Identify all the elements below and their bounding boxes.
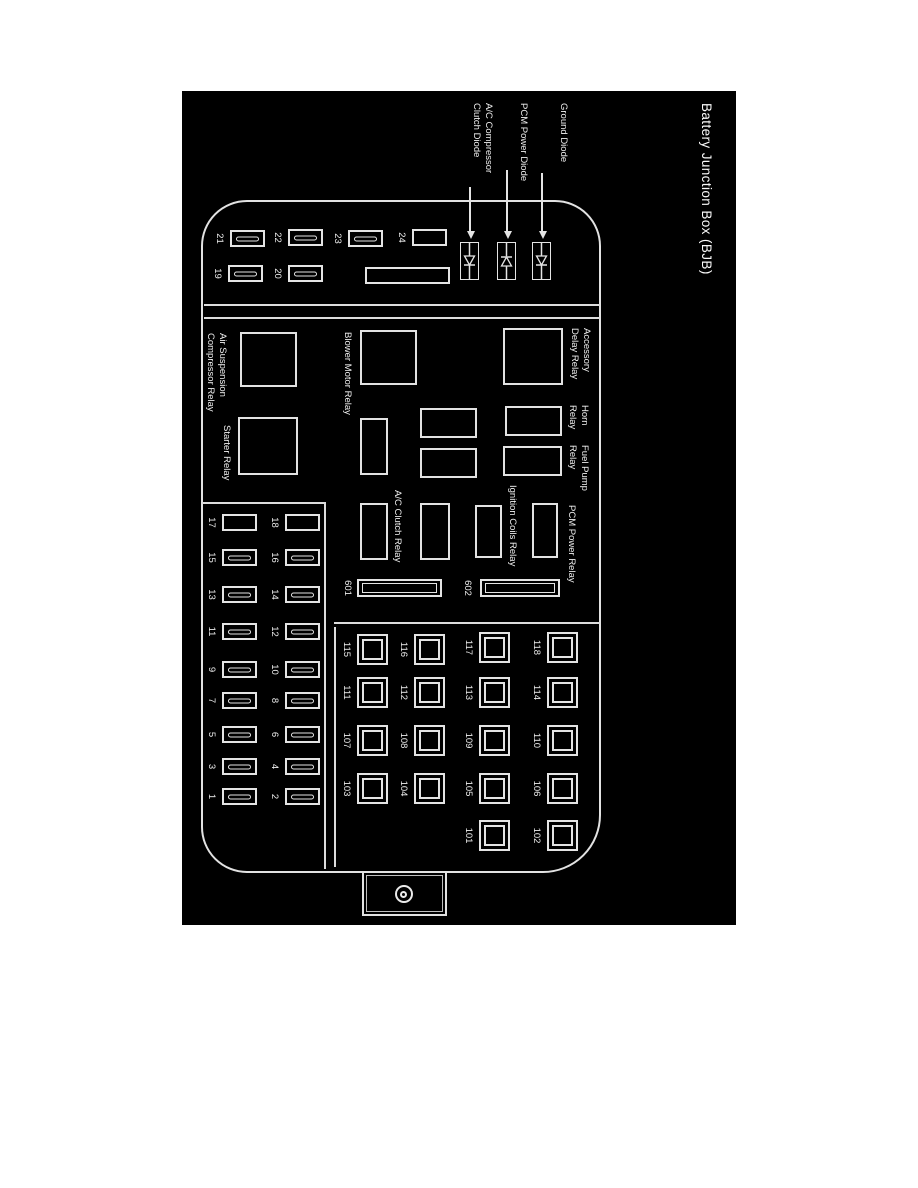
starter-relay-box (238, 417, 298, 475)
fuse-109: 109 (463, 725, 510, 756)
fuse-5: 5 (206, 726, 257, 743)
fuel-pump-relay-label: Fuel Pump Relay (567, 445, 590, 491)
fuse-108: 108 (398, 725, 445, 756)
air-suspension-relay-label: Air Suspension Compressor Relay (205, 333, 228, 412)
fuse-22: 22 (272, 229, 323, 246)
fuse-22-label: 22 (272, 229, 283, 246)
fuse-108-label: 108 (398, 725, 409, 756)
fuse-3-label: 3 (206, 758, 217, 775)
blower-motor-relay-box (360, 330, 417, 385)
fuse-20: 20 (272, 265, 323, 282)
fuse-23: 23 (332, 230, 383, 247)
fuse-9-label: 9 (206, 661, 217, 678)
fuse-111-label: 111 (341, 677, 352, 708)
fuse-602-label: 602 (462, 577, 473, 599)
fuse-8: 8 (269, 692, 320, 709)
fuse-16-label: 16 (269, 549, 280, 566)
air-suspension-relay-label-line1: Air Suspension (217, 333, 229, 412)
fuse-17-label: 17 (206, 514, 217, 531)
divider-line-6 (202, 502, 326, 504)
fuse-16: 16 (269, 549, 320, 566)
fuse-13: 13 (206, 586, 257, 603)
fuse-23-body (348, 230, 383, 247)
fuse-111: 111 (341, 677, 388, 708)
fuse-1-body (222, 788, 257, 805)
blower-motor-relay-label: Blower Motor Relay (342, 332, 354, 415)
fuse-20-label: 20 (272, 265, 283, 282)
fuse-105: 105 (463, 773, 510, 804)
ignition-coils-relay-box (475, 505, 502, 558)
fuse-107-body (357, 725, 388, 756)
fuse-117: 117 (463, 632, 510, 663)
fuse-112: 112 (398, 677, 445, 708)
fuse-12: 12 (269, 623, 320, 640)
fuse-13-body (222, 586, 257, 603)
fuse-106-body (547, 773, 578, 804)
fuse-104: 104 (398, 773, 445, 804)
fuse-102-body (547, 820, 578, 851)
fuse-11: 11 (206, 623, 257, 640)
fuse-102-label: 102 (531, 820, 542, 851)
air-suspension-relay-label-line2: Compressor Relay (205, 333, 217, 412)
fuse-602: 602 (462, 577, 560, 599)
fuse-11-label: 11 (206, 623, 217, 640)
fuse-9: 9 (206, 661, 257, 678)
fuse-7: 7 (206, 692, 257, 709)
starter-relay-label: Starter Relay (221, 425, 233, 480)
pcm-power-relay-box (532, 503, 558, 558)
fuse-20-body (288, 265, 323, 282)
fuse-113: 113 (463, 677, 510, 708)
fuse-10: 10 (269, 661, 320, 678)
fuse-8-label: 8 (269, 692, 280, 709)
fuse-9-body (222, 661, 257, 678)
fuse-7-label: 7 (206, 692, 217, 709)
fuse-6-label: 6 (269, 726, 280, 743)
relay-box-blank-3 (360, 418, 388, 475)
relay-box-blank-1 (420, 408, 477, 438)
fuse-17-body (222, 514, 257, 531)
ac-clutch-relay-box (360, 503, 388, 560)
fuse-114-label: 114 (531, 677, 542, 708)
fuse-115-body (357, 634, 388, 665)
diode-icon (461, 243, 478, 279)
accessory-delay-relay-label: Accessory Delay Relay (569, 328, 592, 379)
fuse-110: 110 (531, 725, 578, 756)
accessory-delay-relay-label-line2: Delay Relay (569, 328, 581, 379)
fuse-4-body (285, 758, 320, 775)
divider-line-3 (334, 622, 600, 624)
fuse-17: 17 (206, 514, 257, 531)
fuse-7-body (222, 692, 257, 709)
fuse-15-body (222, 549, 257, 566)
horn-relay-label: Horn Relay (567, 405, 590, 429)
fuse-103: 103 (341, 773, 388, 804)
manual-page: Battery Junction Box (BJB) Ground Diode … (0, 0, 918, 1188)
fuel-pump-relay-label-line1: Fuel Pump (579, 445, 591, 491)
fuse-10-label: 10 (269, 661, 280, 678)
fuse-19-label: 19 (212, 265, 223, 282)
fuse-118: 118 (531, 632, 578, 663)
fuse-601-label: 601 (342, 577, 353, 599)
pcm-power-relay-label: PCM Power Relay (566, 505, 578, 583)
fuse-110-label: 110 (531, 725, 542, 756)
fuse-105-label: 105 (463, 773, 474, 804)
accessory-delay-relay-box (503, 328, 563, 385)
fuse-24: 24 (396, 229, 447, 246)
fuse-21: 21 (214, 230, 265, 247)
fuse-5-body (222, 726, 257, 743)
fuse-12-body (285, 623, 320, 640)
fuse-112-label: 112 (398, 677, 409, 708)
fuse-21-label: 21 (214, 230, 225, 247)
fuse-10-body (285, 661, 320, 678)
fuse-18-label: 18 (269, 514, 280, 531)
fuse-6: 6 (269, 726, 320, 743)
divider-line-5 (324, 502, 326, 869)
fuse-116-label: 116 (398, 634, 409, 665)
fuse-106-label: 106 (531, 773, 542, 804)
fuse-19: 19 (212, 265, 263, 282)
fuse-5-label: 5 (206, 726, 217, 743)
fuse-116-body (414, 634, 445, 665)
fuse-110-body (547, 725, 578, 756)
fuse-22-body (288, 229, 323, 246)
blank-cartridge-body (365, 267, 450, 284)
fuse-4: 4 (269, 758, 320, 775)
fuse-2-label: 2 (269, 788, 280, 805)
horn-relay-box (505, 406, 562, 436)
fuse-115: 115 (341, 634, 388, 665)
fuse-114-body (547, 677, 578, 708)
fuse-6-body (285, 726, 320, 743)
ac-compressor-clutch-diode-label: A/C Compressor Clutch Diode (471, 103, 494, 173)
fuse-23-label: 23 (332, 230, 343, 247)
fuse-2-body (285, 788, 320, 805)
diode-icon (533, 243, 550, 279)
fuse-14: 14 (269, 586, 320, 603)
ignition-coils-relay-label: Ignition Coils Relay (507, 485, 519, 566)
relay-box-blank-4 (420, 503, 450, 560)
fuse-115-label: 115 (341, 634, 352, 665)
fuse-108-body (414, 725, 445, 756)
bolt-hole-icon (395, 885, 413, 903)
fuse-107-label: 107 (341, 725, 352, 756)
fuse-3: 3 (206, 758, 257, 775)
fuse-4-label: 4 (269, 758, 280, 775)
fuse-117-body (479, 632, 510, 663)
fuel-pump-relay-box (503, 446, 562, 476)
fuse-16-body (285, 549, 320, 566)
fuse-24-label: 24 (396, 229, 407, 246)
divider-line-4 (334, 627, 336, 867)
fuse-107: 107 (341, 725, 388, 756)
fuse-109-label: 109 (463, 725, 474, 756)
fuse-19-body (228, 265, 263, 282)
fuse-105-body (479, 773, 510, 804)
fuse-1: 1 (206, 788, 257, 805)
fuse-113-body (479, 677, 510, 708)
fuse-101: 101 (463, 820, 510, 851)
fuse-103-body (357, 773, 388, 804)
air-suspension-relay-box (240, 332, 297, 387)
horn-relay-label-line1: Horn (579, 405, 591, 429)
fuse-109-body (479, 725, 510, 756)
fuse-21-body (230, 230, 265, 247)
fuse-104-body (414, 773, 445, 804)
fuse-8-body (285, 692, 320, 709)
diode-icon (498, 243, 515, 279)
page-title: Battery Junction Box (BJB) (699, 103, 714, 275)
ac-clutch-diode-symbol (460, 242, 479, 280)
fuse-1-label: 1 (206, 788, 217, 805)
fuse-118-body (547, 632, 578, 663)
fuse-14-body (285, 586, 320, 603)
fuse-2: 2 (269, 788, 320, 805)
fuse-18-body (285, 514, 320, 531)
ac-clutch-relay-label: A/C Clutch Relay (392, 490, 404, 562)
pcm-power-diode-label: PCM Power Diode (518, 103, 530, 181)
pcm-power-diode-symbol (497, 242, 516, 280)
fuse-15-label: 15 (206, 549, 217, 566)
fuse-11-body (222, 623, 257, 640)
ac-diode-label-line1: A/C Compressor (483, 103, 495, 173)
fuse-112-body (414, 677, 445, 708)
divider-line-2 (204, 317, 600, 319)
fuse-116: 116 (398, 634, 445, 665)
fuse-114: 114 (531, 677, 578, 708)
horn-relay-label-line2: Relay (567, 405, 579, 429)
fuse-113-label: 113 (463, 677, 474, 708)
fuse-slot-blank (365, 267, 450, 284)
fuse-602-body (480, 579, 560, 597)
fuse-117-label: 117 (463, 632, 474, 663)
fuse-103-label: 103 (341, 773, 352, 804)
fuse-24-body (412, 229, 447, 246)
fuse-104-label: 104 (398, 773, 409, 804)
accessory-delay-relay-label-line1: Accessory (581, 328, 593, 379)
ground-diode-label: Ground Diode (558, 103, 570, 162)
fuse-111-body (357, 677, 388, 708)
fuse-13-label: 13 (206, 586, 217, 603)
ac-diode-label-line2: Clutch Diode (471, 103, 483, 173)
divider-line-1 (204, 304, 600, 306)
bjb-diagram: Battery Junction Box (BJB) Ground Diode … (182, 91, 736, 925)
fuel-pump-relay-label-line2: Relay (567, 445, 579, 491)
fuse-118-label: 118 (531, 632, 542, 663)
fuse-14-label: 14 (269, 586, 280, 603)
fuse-3-body (222, 758, 257, 775)
fuse-106: 106 (531, 773, 578, 804)
fuse-601-body (357, 579, 442, 597)
fuse-18: 18 (269, 514, 320, 531)
fuse-101-body (479, 820, 510, 851)
relay-box-blank-2 (420, 448, 477, 478)
fuse-12-label: 12 (269, 623, 280, 640)
fuse-102: 102 (531, 820, 578, 851)
scanned-figure-area: Battery Junction Box (BJB) Ground Diode … (182, 91, 736, 925)
fuse-15: 15 (206, 549, 257, 566)
fuse-101-label: 101 (463, 820, 474, 851)
ground-diode-symbol (532, 242, 551, 280)
fuse-601: 601 (342, 577, 442, 599)
